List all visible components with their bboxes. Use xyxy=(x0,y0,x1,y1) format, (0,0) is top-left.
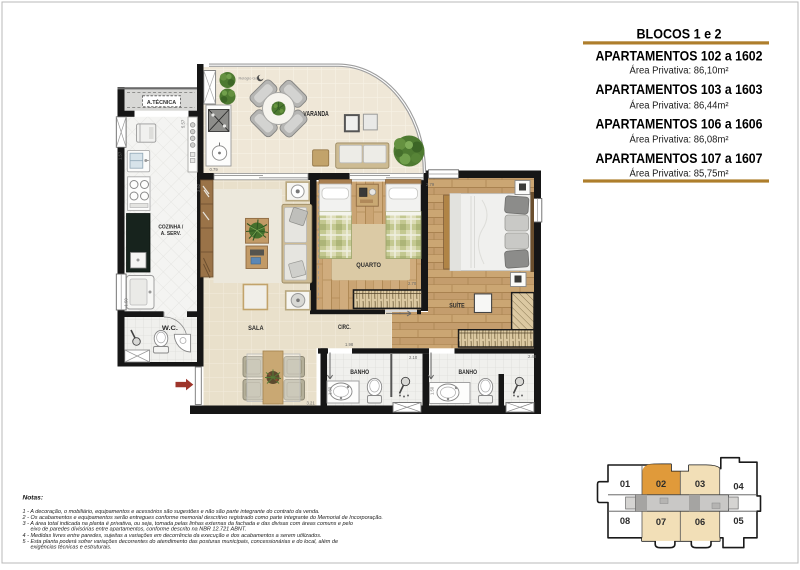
svg-text:1.98: 1.98 xyxy=(345,342,354,347)
svg-text:A.TÉCNICA: A.TÉCNICA xyxy=(147,98,176,106)
svg-text:1.50: 1.50 xyxy=(124,298,129,307)
svg-text:08: 08 xyxy=(620,516,630,526)
svg-text:1.50: 1.50 xyxy=(430,386,435,395)
svg-text:2.48: 2.48 xyxy=(528,354,537,359)
svg-text:CIRC.: CIRC. xyxy=(338,325,351,331)
svg-text:A. SERV.: A. SERV. xyxy=(161,231,181,237)
svg-text:01: 01 xyxy=(620,479,630,489)
svg-text:1.30: 1.30 xyxy=(328,386,333,395)
svg-text:05: 05 xyxy=(733,516,743,526)
svg-text:COZINHA /: COZINHA / xyxy=(158,224,183,230)
svg-text:SUÍTE: SUÍTE xyxy=(449,301,465,309)
svg-text:0.79: 0.79 xyxy=(210,167,219,172)
svg-text:2.10: 2.10 xyxy=(409,355,418,360)
svg-text:2.70: 2.70 xyxy=(408,281,417,286)
svg-text:QUARTO: QUARTO xyxy=(356,262,381,269)
svg-text:APARTAMENTOS 102 a 1602: APARTAMENTOS 102 a 1602 xyxy=(596,47,763,63)
svg-text:Área Privativa: 86,10m²: Área Privativa: 86,10m² xyxy=(630,66,730,77)
svg-text:Notas:: Notas: xyxy=(23,495,44,502)
svg-text:3.21: 3.21 xyxy=(307,401,316,406)
svg-text:Área Privativa: 86,44m²: Área Privativa: 86,44m² xyxy=(630,100,730,111)
svg-text:SALA: SALA xyxy=(248,325,264,332)
svg-text:06: 06 xyxy=(695,517,705,527)
svg-text:VARANDA: VARANDA xyxy=(303,111,329,118)
svg-text:1.57: 1.57 xyxy=(118,151,123,160)
svg-text:03: 03 xyxy=(695,479,705,489)
svg-text:exigências técnicas e estrutur: exigências técnicas e estruturais. xyxy=(31,545,112,551)
svg-text:Área Privativa: 86,08m²: Área Privativa: 86,08m² xyxy=(630,134,730,145)
svg-text:07: 07 xyxy=(656,517,666,527)
svg-text:eixo de paredes divisórias ent: eixo de paredes divisórias entre apartam… xyxy=(31,527,247,533)
svg-text:2 - Os acabamentos e equipamen: 2 - Os acabamentos e equipamentos serão … xyxy=(22,515,383,521)
svg-text:BLOCOS 1 e 2: BLOCOS 1 e 2 xyxy=(637,26,722,42)
svg-text:APARTAMENTOS 103 a 1603: APARTAMENTOS 103 a 1603 xyxy=(596,81,763,97)
svg-text:Relógio Gás: Relógio Gás xyxy=(239,77,260,81)
svg-text:5.57: 5.57 xyxy=(181,119,186,128)
svg-text:BANHO: BANHO xyxy=(459,370,478,376)
svg-text:W.C.: W.C. xyxy=(162,325,178,332)
svg-text:2.79: 2.79 xyxy=(426,182,435,187)
svg-text:BANHO: BANHO xyxy=(350,370,369,376)
svg-text:Área Privativa: 85,75m²: Área Privativa: 85,75m² xyxy=(630,169,730,180)
svg-text:04: 04 xyxy=(733,482,744,492)
svg-text:02: 02 xyxy=(656,479,666,489)
svg-text:APARTAMENTOS 106 a 1606: APARTAMENTOS 106 a 1606 xyxy=(596,116,763,132)
svg-text:APARTAMENTOS 107 a 1607: APARTAMENTOS 107 a 1607 xyxy=(596,150,763,166)
svg-text:4 - Medidas livres entre pared: 4 - Medidas livres entre paredes, sujeit… xyxy=(23,533,322,539)
svg-text:1 - A decoração, o mobiliário,: 1 - A decoração, o mobiliário, equipamen… xyxy=(23,509,320,515)
svg-text:3.62: 3.62 xyxy=(196,183,201,192)
